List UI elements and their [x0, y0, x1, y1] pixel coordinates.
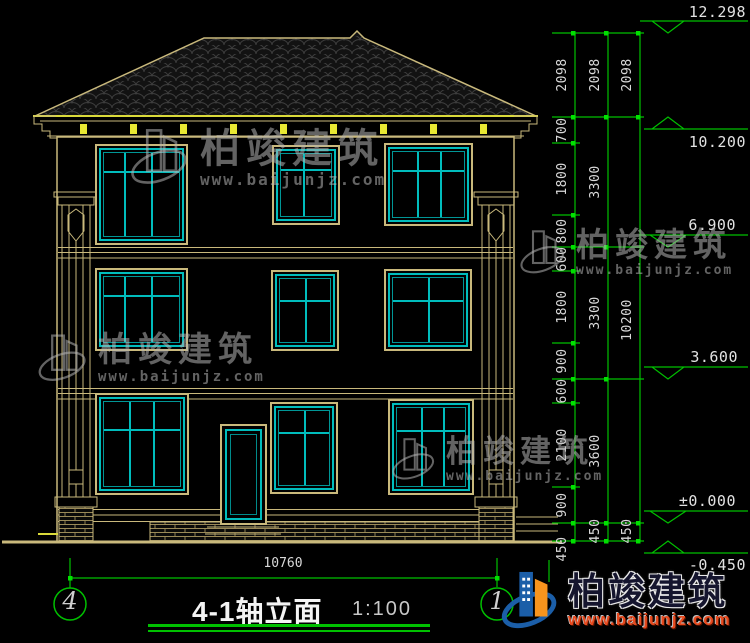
window-glass — [99, 272, 184, 347]
window-1f-middle — [270, 402, 338, 494]
transom — [393, 300, 463, 302]
window-3f-middle — [272, 145, 340, 225]
window-glass — [275, 274, 335, 347]
dim-label: 10200 — [620, 290, 636, 350]
window-glass — [99, 148, 184, 241]
brand-logo-icon — [500, 566, 562, 636]
transom — [280, 300, 330, 302]
window-3f-left — [95, 144, 188, 245]
mullion — [124, 277, 126, 342]
window-1f-right — [388, 399, 474, 495]
dim-label: 2098 — [588, 45, 604, 105]
window-glass — [392, 403, 470, 491]
window-glass — [388, 147, 469, 222]
dim-label: 450 — [620, 501, 636, 561]
mullion — [417, 152, 419, 217]
mullion — [305, 279, 307, 342]
eave-fascia — [34, 116, 537, 138]
right-pilaster — [474, 192, 518, 497]
transom — [393, 170, 464, 172]
elevation-label: 10.200 — [648, 133, 746, 151]
dim-label: 1800 — [555, 149, 571, 209]
dim-label: 2098 — [620, 45, 636, 105]
window-3f-right — [384, 143, 473, 226]
hipped-roof — [33, 31, 538, 116]
dim-label: 2098 — [555, 45, 571, 105]
transom — [104, 429, 180, 431]
dim-label: 3300 — [588, 283, 604, 343]
elevation-label: 12.298 — [648, 3, 746, 21]
window-1f-left — [95, 393, 189, 495]
dim-label: 450 — [588, 501, 604, 561]
axis-bubble-4: 4 — [53, 587, 87, 621]
mullion — [124, 153, 126, 236]
window-2f-left — [95, 268, 188, 351]
transom — [104, 171, 179, 173]
mullion — [440, 152, 442, 217]
window-glass — [274, 406, 334, 490]
window-glass — [388, 273, 468, 347]
transom — [397, 430, 465, 432]
mullion — [443, 408, 445, 486]
window-2f-right — [384, 269, 472, 351]
brand-logo-text: 柏竣建筑 www.baijunjz.com — [568, 573, 731, 630]
transom — [104, 295, 179, 297]
window-glass — [276, 149, 336, 221]
elevation-drawing-canvas: 2098 700 1800 800 600 1800 900 600 2100 … — [0, 0, 750, 643]
entry-door — [220, 424, 267, 525]
rafter-blocks — [80, 124, 487, 134]
dim-label: 600 — [555, 361, 571, 421]
door-panel — [225, 429, 262, 520]
window-glass — [99, 397, 185, 491]
mullion — [153, 402, 155, 486]
drawing-scale: 1:100 — [352, 598, 412, 621]
elevation-label: 6.900 — [638, 216, 746, 234]
mullion — [304, 411, 306, 485]
mullion — [303, 154, 305, 216]
mullion — [151, 153, 153, 236]
elevation-label: ±0.000 — [638, 492, 746, 510]
title-underline — [148, 630, 430, 632]
mullion — [428, 278, 430, 342]
mullion — [151, 277, 153, 342]
mullion — [129, 402, 131, 486]
title-underline — [148, 624, 430, 627]
transom — [281, 169, 331, 171]
dim-label: 3600 — [588, 421, 604, 481]
dim-label: 3300 — [588, 152, 604, 212]
brand-logo-name: 柏竣建筑 — [568, 573, 731, 610]
brand-logo: 柏竣建筑 www.baijunjz.com — [500, 566, 731, 636]
transom — [279, 432, 329, 434]
brick-plinth — [55, 497, 517, 542]
left-pilaster — [54, 192, 98, 497]
dim-label: 1800 — [555, 277, 571, 337]
dim-label: 2100 — [555, 415, 571, 475]
bottom-width-dim: 10760 — [233, 556, 333, 571]
window-2f-middle — [271, 270, 339, 351]
mullion — [421, 408, 423, 486]
elevation-label: 3.600 — [640, 348, 748, 366]
brand-logo-url: www.baijunjz.com — [568, 610, 731, 630]
